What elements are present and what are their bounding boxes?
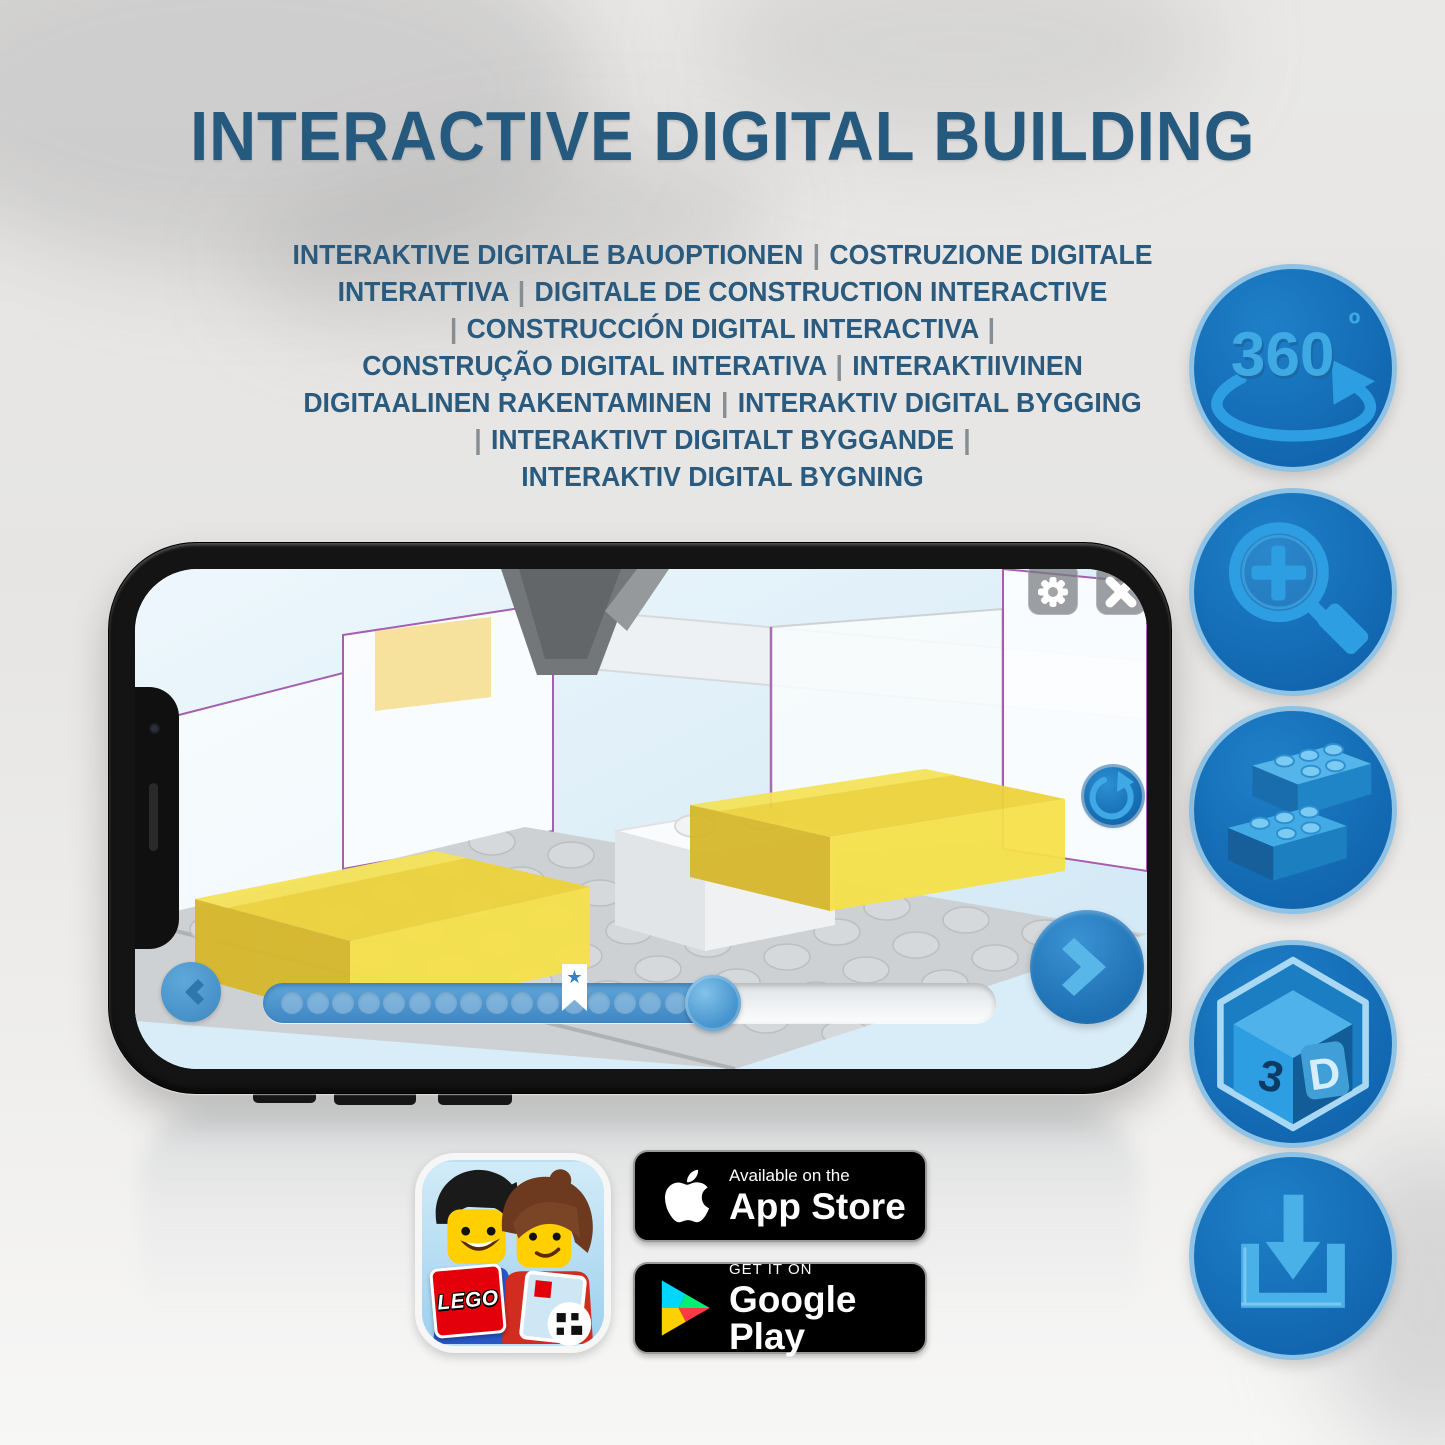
gear-icon [1028, 569, 1078, 615]
pipe-separator: | [719, 387, 730, 418]
phone-screen: ★ [135, 569, 1147, 1069]
progress-dot [614, 992, 636, 1014]
star-icon: ★ [566, 967, 582, 987]
feature-bricks-circle [1189, 706, 1397, 914]
progress-dot [537, 992, 559, 1014]
feature-360-circle: 360 360 º [1189, 264, 1397, 472]
progress-dot [332, 992, 354, 1014]
pipe-separator: | [472, 424, 483, 455]
progress-dot [486, 992, 508, 1014]
build-progress-slider[interactable]: ★ [263, 983, 996, 1023]
progress-dot [460, 992, 482, 1014]
progress-dots [281, 983, 841, 1023]
feature-3d-circle: 3 D [1189, 940, 1397, 1148]
app-store-tagline: Available on the [729, 1167, 906, 1184]
progress-dot [435, 992, 457, 1014]
progress-dot [383, 992, 405, 1014]
earpiece-speaker [149, 783, 158, 851]
svg-text:360: 360 [1231, 321, 1335, 390]
feature-zoom-circle [1189, 488, 1397, 696]
page-title: INTERACTIVE DIGITAL BUILDING [0, 96, 1445, 176]
lego-logo-text: LEGO [436, 1286, 499, 1315]
svg-text:º: º [1349, 306, 1361, 342]
download-icon [1194, 1157, 1392, 1355]
pipe-separator: | [516, 276, 527, 307]
smartphone-mockup: ★ [108, 542, 1172, 1094]
progress-dot [409, 992, 431, 1014]
rotate-view-button[interactable] [1084, 767, 1142, 825]
marketing-graphic: INTERACTIVE DIGITAL BUILDING INTERAKTIVE… [0, 0, 1445, 1445]
app-store-name: App Store [729, 1188, 906, 1225]
rotate-refresh-icon [1084, 767, 1142, 825]
pipe-separator: | [448, 313, 459, 344]
pipe-separator: | [811, 239, 822, 270]
progress-dot [511, 992, 533, 1014]
stacking-bricks-icon [1194, 711, 1392, 909]
subtitle-line: INTERAKTIVE DIGITALE BAUOPTIONEN | COSTR… [36, 236, 1409, 273]
previous-step-button[interactable] [161, 962, 221, 1022]
progress-dot [307, 992, 329, 1014]
back-chevron-icon [161, 962, 221, 1022]
next-chevron-icon [1030, 910, 1144, 1024]
cube-3d-icon: 3 D [1194, 945, 1392, 1143]
google-play-name: Google Play [729, 1281, 925, 1355]
lego-logo: LEGO [429, 1263, 507, 1339]
google-play-tagline: GET IT ON [729, 1262, 925, 1277]
rotate-360-icon: 360 360 º [1194, 269, 1392, 467]
progress-dot [588, 992, 610, 1014]
close-icon [1096, 569, 1146, 615]
progress-dot [281, 992, 303, 1014]
pipe-separator: | [961, 424, 972, 455]
settings-button[interactable] [1028, 569, 1078, 615]
front-camera [149, 723, 160, 734]
lego-building-instructions-app-icon[interactable]: LEGO [415, 1153, 611, 1353]
close-button[interactable] [1096, 569, 1146, 615]
phone-notch [135, 687, 179, 949]
progress-dot [639, 992, 661, 1014]
slider-knob[interactable] [685, 975, 741, 1031]
progress-dot [358, 992, 380, 1014]
next-step-button[interactable] [1030, 910, 1144, 1024]
app-store-badge[interactable]: Available on the App Store [633, 1150, 927, 1242]
feature-download-circle [1189, 1152, 1397, 1360]
google-play-badge[interactable]: GET IT ON Google Play [633, 1262, 927, 1354]
pipe-separator: | [834, 350, 845, 381]
pipe-separator: | [986, 313, 997, 344]
apple-logo-icon [657, 1166, 717, 1226]
google-play-logo-icon [657, 1278, 717, 1338]
page-title-text: INTERACTIVE DIGITAL BUILDING [190, 96, 1255, 176]
progress-dot [665, 992, 687, 1014]
zoom-in-icon [1194, 493, 1392, 691]
svg-text:D: D [1306, 1048, 1344, 1100]
